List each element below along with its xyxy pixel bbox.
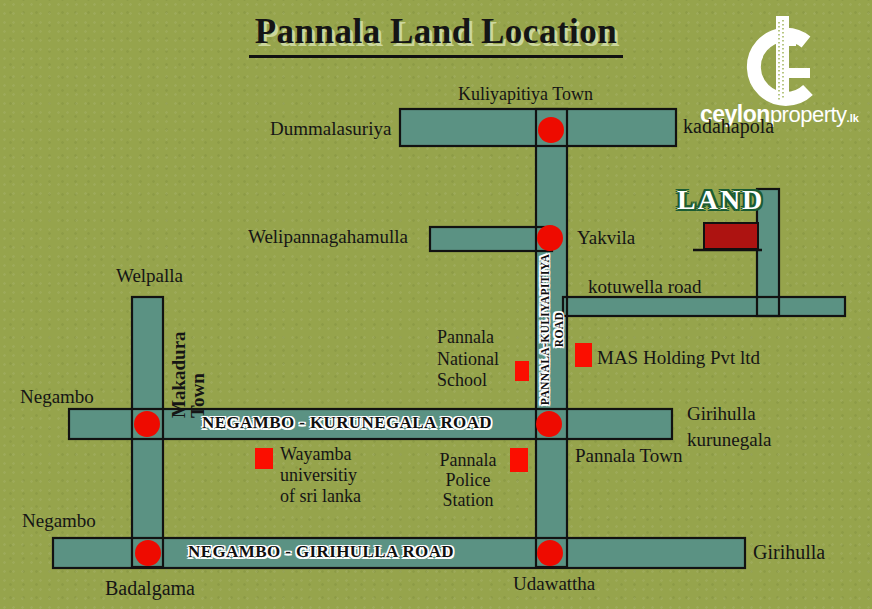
kotuwella-road: [563, 297, 845, 316]
land-plot-marker: [704, 223, 758, 249]
pannala-police-station-marker: [510, 448, 528, 472]
police-line1: Pannala: [428, 450, 508, 470]
page-title: Pannala Land Location: [249, 12, 624, 58]
label-dummalasuriya: Dummalasuriya: [270, 119, 391, 139]
label-land: LAND: [677, 185, 764, 214]
kuliyapitiya-junction-dot: [538, 117, 564, 143]
label-welipannagahamulla: Welipannagahamulla: [248, 227, 408, 247]
label-kotuwella-road: kotuwella road: [588, 277, 701, 297]
label-girihulla-kurunegala: Girihulla kurunegala: [687, 401, 771, 453]
label-makadura-town: Makadura Town: [169, 302, 207, 418]
udawattha-junction-dot: [537, 540, 563, 566]
pannala-town-junction-dot: [536, 411, 562, 437]
welipannagahamulla-road: [430, 227, 552, 251]
girihulla-kurunegala-line2: kurunegala: [687, 427, 771, 453]
mas-holding-marker: [575, 343, 592, 367]
label-mas-holding: MAS Holding Pvt ltd: [597, 348, 760, 368]
label-makadura-line1: Makadura: [169, 302, 188, 418]
pk-road-line2: ROAD: [552, 249, 566, 411]
logo-brand-light: property: [770, 102, 847, 127]
school-line2: National: [437, 349, 499, 371]
logo-tld: .lk: [847, 112, 859, 124]
label-kuliyapitiya-town: Kuliyapitiya Town: [458, 85, 593, 104]
police-line3: Station: [428, 490, 508, 510]
wayamba-line1: Wayamba: [280, 444, 361, 465]
label-kadahapola: kadahapola: [683, 116, 774, 137]
pannala-land-location-map: Pannala Land Location ceylonproperty.lk …: [0, 0, 872, 609]
label-negambo-kurunegala-road: NEGAMBO - KURUNEGALA ROAD: [202, 414, 492, 432]
label-wayamba-university: Wayamba universitiy of sri lanka: [280, 444, 361, 507]
police-line2: Police: [428, 470, 508, 490]
label-negambo-top: Negambo: [20, 387, 94, 407]
wayamba-university-marker: [255, 448, 273, 469]
label-makadura-line2: Town: [188, 302, 207, 418]
girihulla-kurunegala-line1: Girihulla: [687, 401, 771, 427]
label-negambo-girihulla-road: NEGAMBO - GIRIHULLA ROAD: [188, 543, 454, 561]
label-pannala-national-school: Pannala National School: [437, 327, 499, 392]
badalgama-junction-dot: [135, 540, 161, 566]
wayamba-line2: universitiy: [280, 465, 361, 486]
label-badalgama: Badalgama: [105, 578, 195, 599]
label-pannala-kuliyapitiya-road: PANNALA-KULIYAPITIYA ROAD: [539, 249, 566, 411]
label-negambo-bottom: Negambo: [22, 511, 96, 531]
school-line1: Pannala: [437, 327, 499, 349]
label-pannala-town: Pannala Town: [575, 446, 683, 466]
label-yakvila: Yakvila: [577, 228, 635, 248]
label-udawattha: Udawattha: [513, 574, 595, 594]
label-welpalla: Welpalla: [116, 266, 183, 286]
label-girihulla: Girihulla: [753, 542, 825, 563]
pannala-national-school-marker: [515, 361, 529, 381]
label-pannala-police-station: Pannala Police Station: [428, 450, 508, 510]
yakvila-junction-dot: [537, 225, 563, 251]
school-line3: School: [437, 370, 499, 392]
negambo-kurunegala-junction-dot: [134, 411, 160, 437]
wayamba-line3: of sri lanka: [280, 486, 361, 507]
pk-road-line1: PANNALA-KULIYAPITIYA: [539, 249, 553, 411]
logo-mark-icon: [734, 16, 834, 108]
